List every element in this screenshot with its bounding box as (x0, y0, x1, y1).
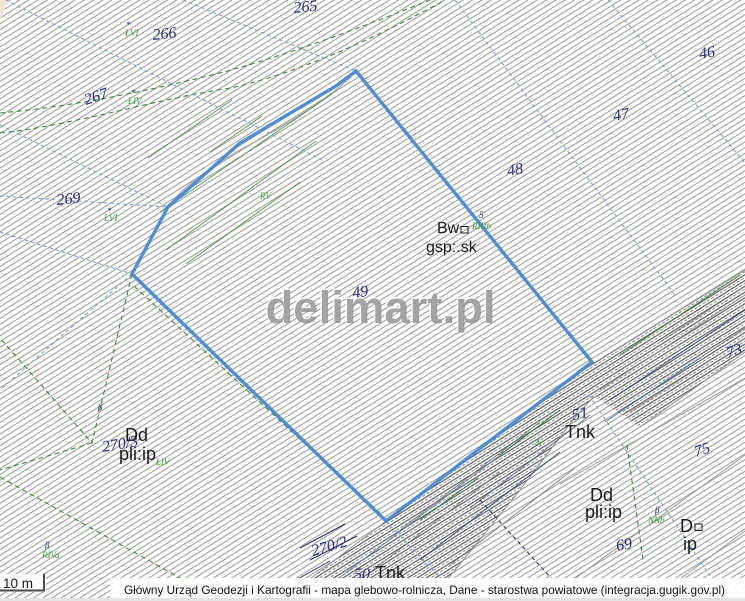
svg-text:RIVa: RIVa (41, 550, 60, 560)
svg-text:β: β (654, 505, 660, 515)
svg-text:D: D (680, 516, 693, 536)
svg-text:265: 265 (293, 0, 319, 17)
svg-text:269: 269 (56, 190, 82, 209)
svg-text:gsp:.sk: gsp:.sk (426, 239, 478, 256)
svg-text:delimart.pl: delimart.pl (266, 282, 496, 333)
svg-text:*: * (126, 20, 131, 30)
svg-text:pli:ip: pli:ip (585, 502, 622, 522)
svg-text:5: 5 (479, 210, 484, 220)
svg-text:*: * (131, 88, 136, 98)
svg-text:49: 49 (351, 283, 369, 302)
svg-text:β: β (44, 540, 50, 550)
svg-text:ŁIV: ŁIV (155, 457, 171, 467)
svg-text:β: β (97, 402, 103, 412)
svg-text:ip: ip (683, 534, 697, 554)
svg-text:Bw: Bw (437, 220, 460, 237)
svg-text:46: 46 (698, 43, 717, 63)
svg-text:NNb: NNb (647, 515, 665, 525)
svg-text:Dd: Dd (125, 425, 148, 445)
svg-text:48: 48 (506, 160, 525, 180)
svg-text:pli:ip: pli:ip (119, 444, 156, 464)
svg-text:Główny Urząd Geodezji i Kartog: Główny Urząd Geodezji i Kartografii - ma… (124, 583, 725, 597)
svg-text:10 m: 10 m (3, 576, 33, 591)
svg-text:RV: RV (259, 191, 272, 201)
svg-text:51: 51 (571, 404, 590, 424)
svg-text:Tnk: Tnk (565, 422, 596, 442)
svg-text:RIIIb: RIIIb (471, 221, 491, 231)
svg-text:266: 266 (152, 25, 178, 44)
svg-text:69: 69 (615, 535, 634, 555)
svg-text:4r: 4r (535, 438, 544, 448)
svg-text:*: * (107, 206, 112, 216)
